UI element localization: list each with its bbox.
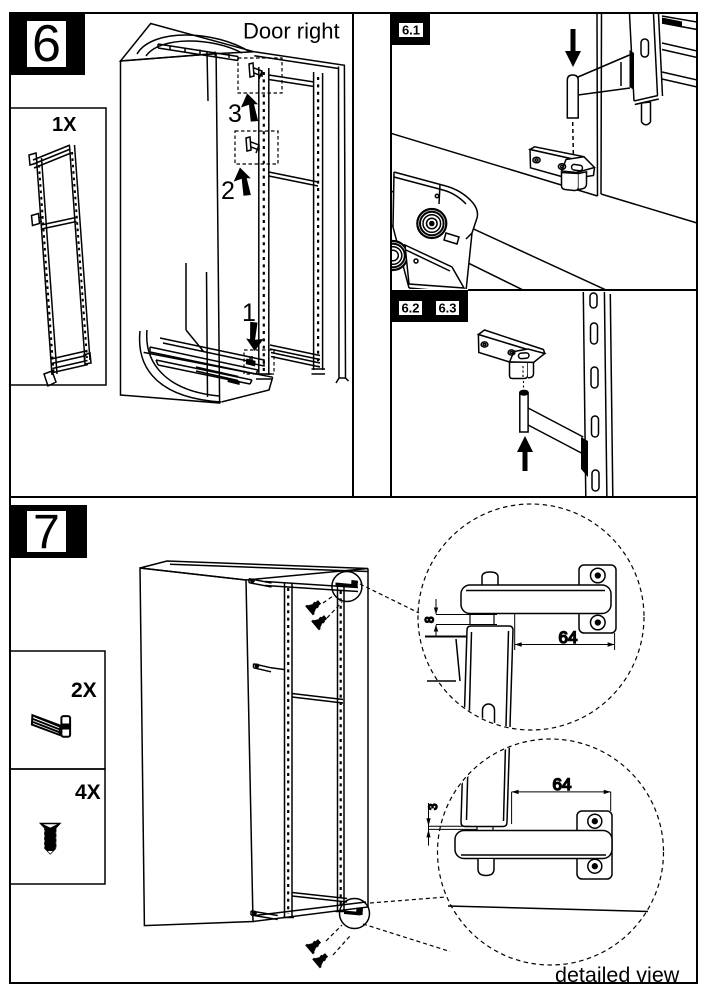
svg-text:6.1: 6.1 xyxy=(402,23,420,38)
svg-text:3: 3 xyxy=(428,804,440,810)
svg-text:6: 6 xyxy=(32,15,61,73)
svg-text:4X: 4X xyxy=(75,781,101,804)
svg-text:64: 64 xyxy=(559,628,578,647)
svg-text:6.2: 6.2 xyxy=(401,301,419,316)
svg-text:2: 2 xyxy=(221,177,235,205)
svg-text:64: 64 xyxy=(553,775,572,794)
svg-text:6.3: 6.3 xyxy=(438,301,456,316)
svg-text:3: 3 xyxy=(228,100,242,128)
svg-text:1: 1 xyxy=(242,299,256,327)
svg-text:7: 7 xyxy=(33,506,60,559)
svg-text:Door right: Door right xyxy=(243,19,340,44)
svg-text:8: 8 xyxy=(425,617,437,623)
svg-text:detailed view: detailed view xyxy=(555,963,680,987)
svg-text:2X: 2X xyxy=(71,679,97,702)
svg-text:1X: 1X xyxy=(52,114,77,136)
